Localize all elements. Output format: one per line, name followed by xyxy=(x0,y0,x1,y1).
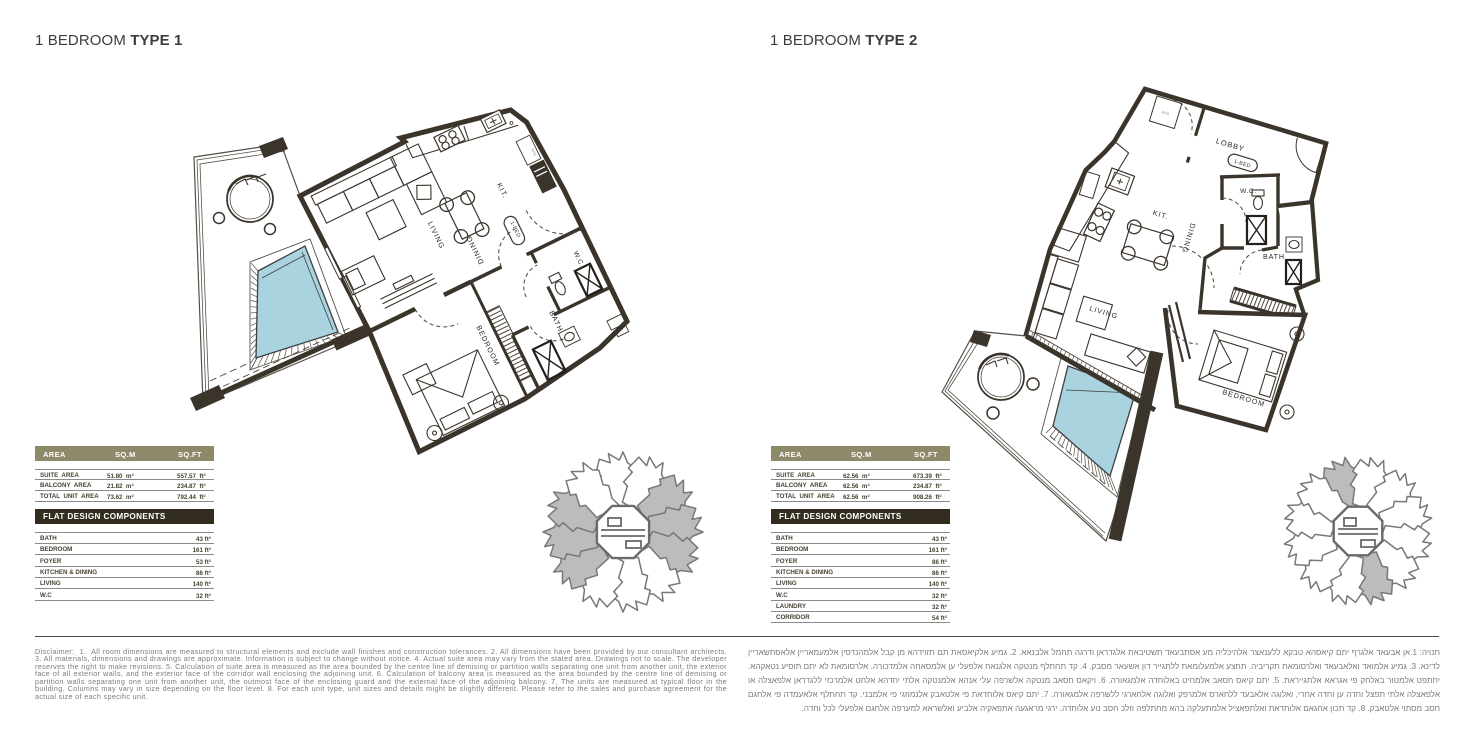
svg-text:BATH: BATH xyxy=(1263,252,1285,261)
svg-text:W.C.: W.C. xyxy=(1240,188,1257,195)
